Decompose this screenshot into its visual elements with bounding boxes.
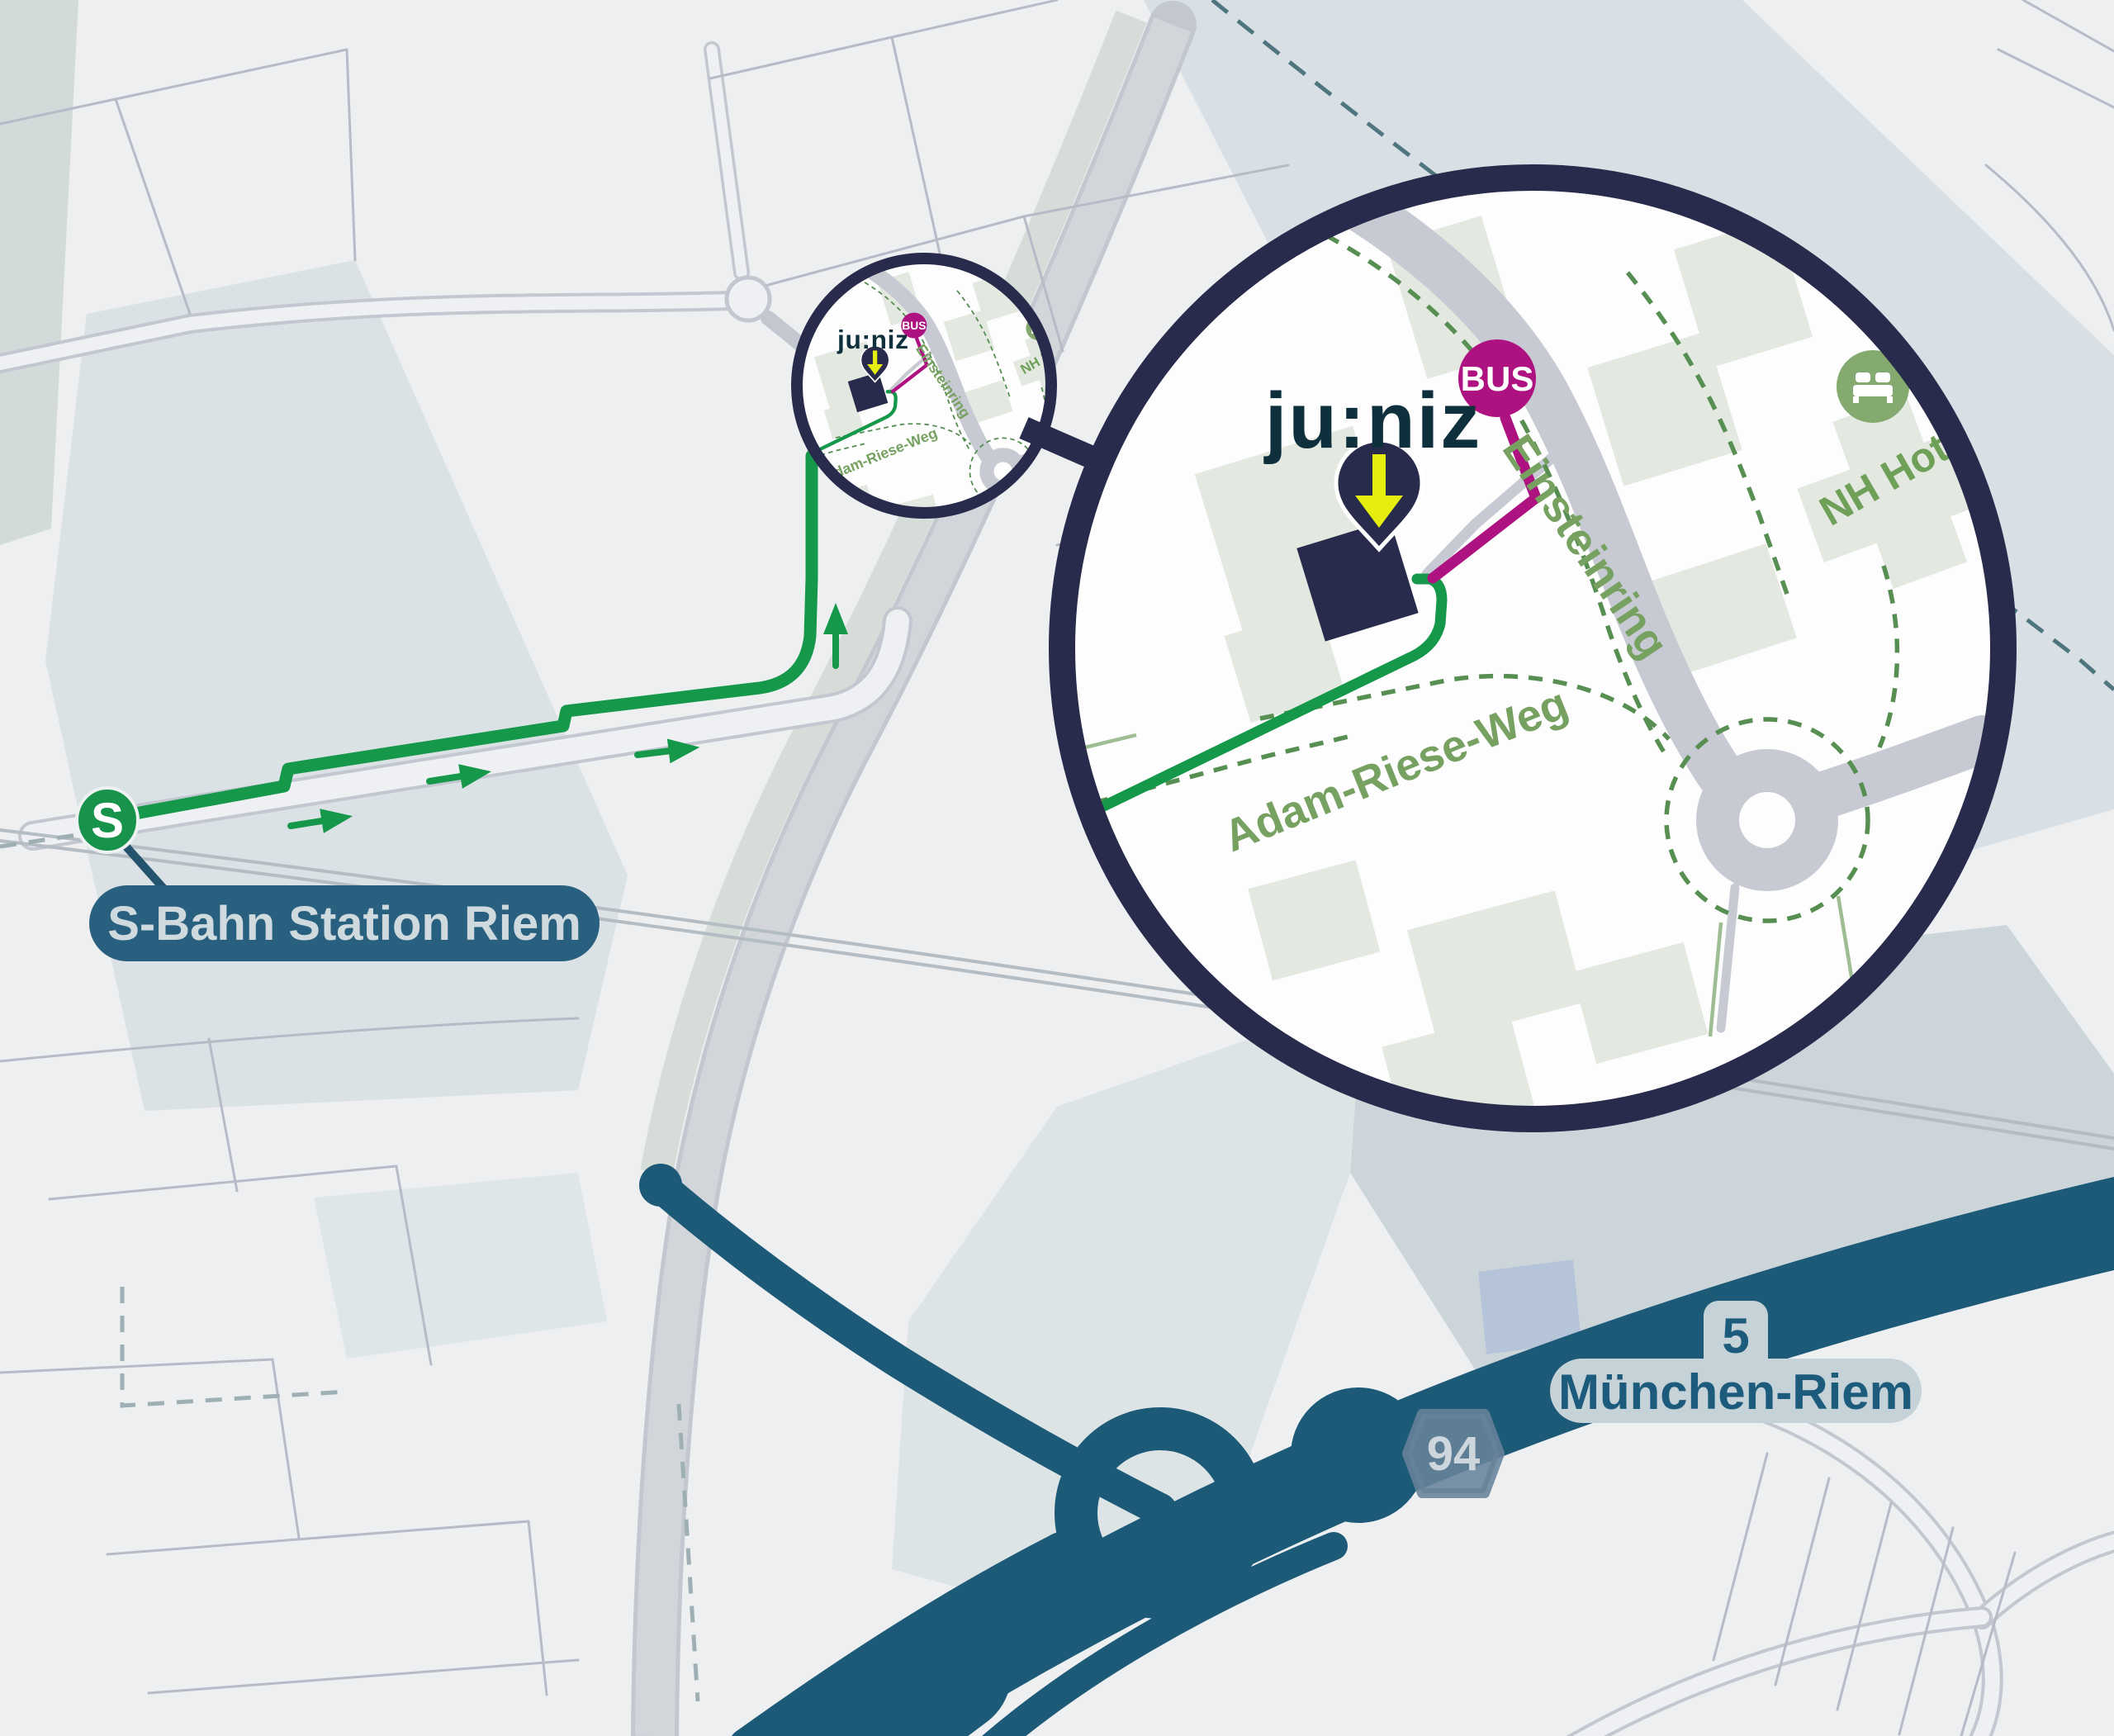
badge-94-label: 94 <box>1427 1427 1481 1481</box>
road-junction-circle <box>727 277 770 320</box>
map-canvas: BUS ju:niz Einsteinring Adam-Riese-Weg <box>0 0 2114 1736</box>
exit-number-label: 5 <box>1722 1308 1749 1364</box>
exit-name-label: München-Riem <box>1558 1364 1913 1420</box>
s-logo-letter: S <box>91 793 124 848</box>
station-label: S-Bahn Station Riem <box>89 885 600 961</box>
station-label-text: S-Bahn Station Riem <box>107 897 581 951</box>
motorway-badge-94: 94 <box>1407 1414 1500 1493</box>
map-stage: BUS ju:niz Einsteinring Adam-Riese-Weg <box>0 0 2114 1736</box>
s-bahn-logo: S <box>77 788 138 852</box>
